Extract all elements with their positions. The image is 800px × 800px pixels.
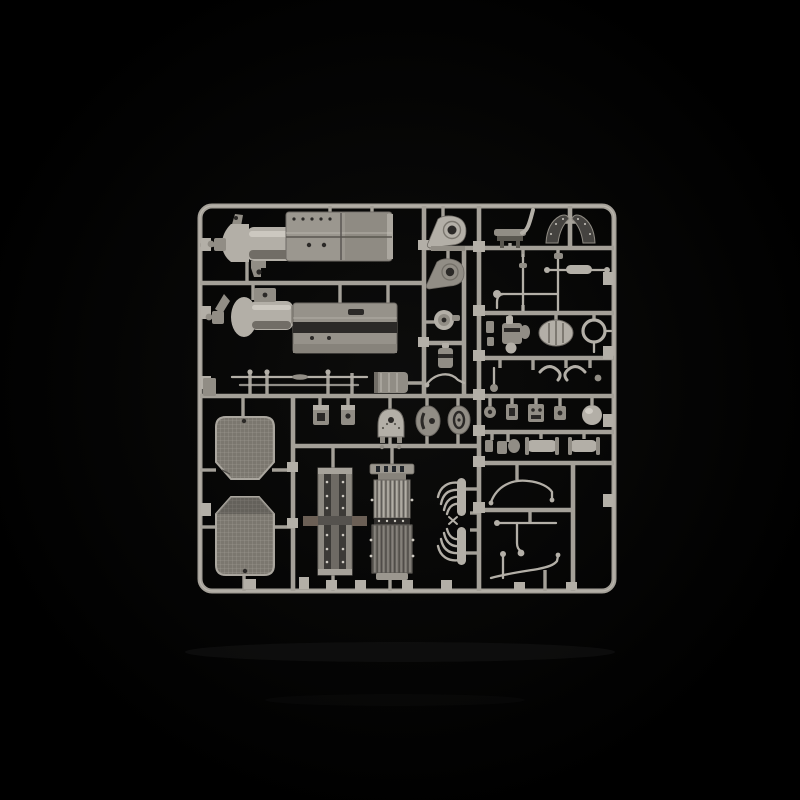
part-oval-plate-left [416,406,440,436]
sprue-photo [0,0,800,800]
part-side-panel-lower [293,303,397,353]
part-radiator-core [370,464,415,580]
part-small-box-left [313,405,329,425]
part-oval-plate-right [448,406,470,434]
backdrop [0,0,800,800]
table-reflection [185,642,615,662]
table-reflection-faint [265,694,525,706]
photo-canvas [0,0,800,800]
part-oval-air-tank [539,320,573,346]
part-radiator-grille-upper [216,417,274,479]
part-ribbed-cylinder [374,372,408,393]
part-radiator-grille-lower [216,497,274,575]
part-side-panel-upper [286,212,393,261]
part-small-box-right [341,405,355,425]
